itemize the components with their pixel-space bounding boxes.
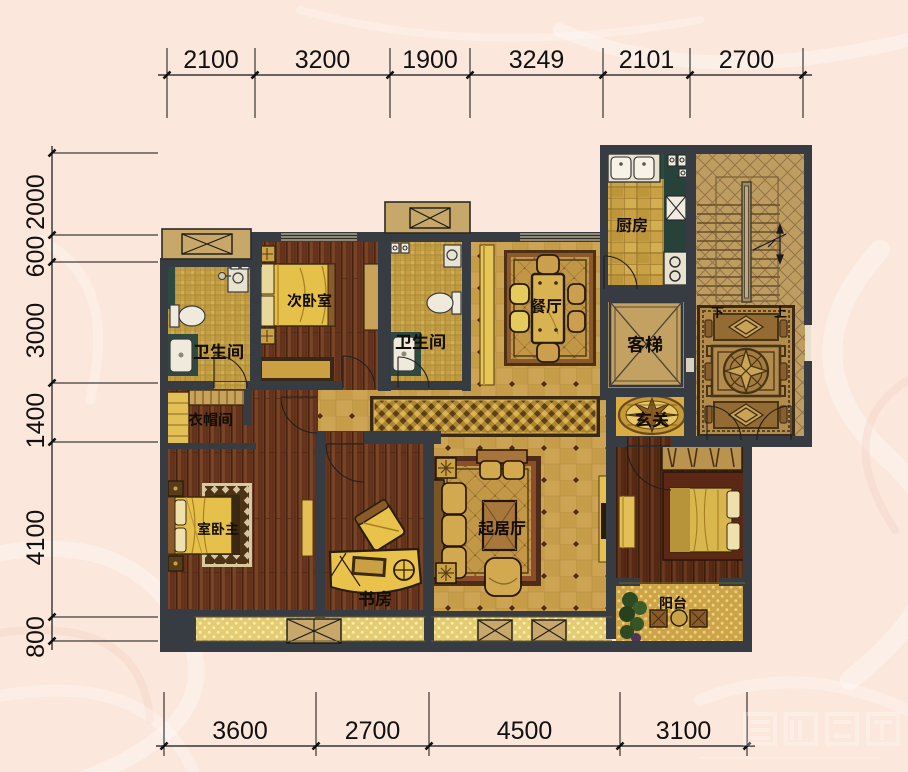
svg-text:3249: 3249 [509,46,565,74]
svg-text:2700: 2700 [719,46,775,74]
svg-text:800: 800 [22,616,50,658]
svg-text:4100: 4100 [22,510,50,566]
svg-text:3600: 3600 [212,717,268,745]
svg-text:2101: 2101 [619,46,675,74]
svg-text:1400: 1400 [22,393,50,449]
svg-text:1900: 1900 [402,46,458,74]
svg-text:3200: 3200 [295,46,351,74]
svg-text:3000: 3000 [22,303,50,359]
svg-text:3100: 3100 [656,717,712,745]
svg-text:2000: 2000 [22,174,50,230]
svg-text:600: 600 [22,236,50,278]
svg-text:4500: 4500 [497,717,553,745]
svg-text:2700: 2700 [345,717,401,745]
svg-text:2100: 2100 [183,46,239,74]
